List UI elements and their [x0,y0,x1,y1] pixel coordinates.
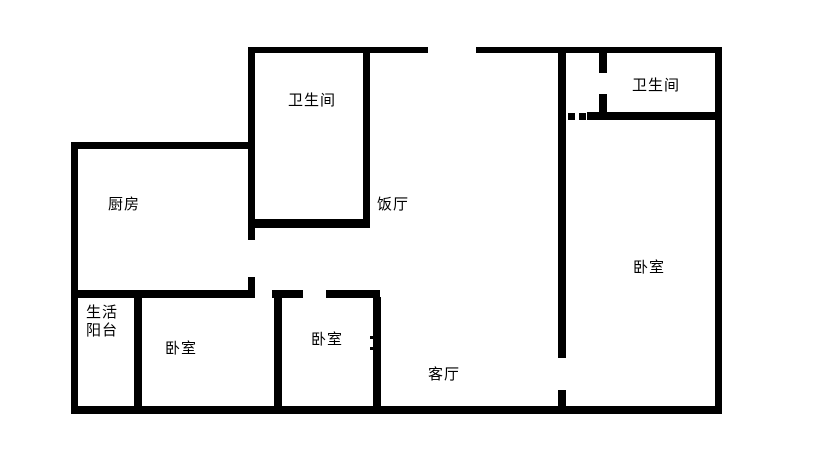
door-tick-lower [370,347,373,350]
utility-balcony-line2: 阳台 [86,321,118,339]
living-room-label: 客厅 [428,366,460,382]
dining-label: 饭厅 [377,196,409,212]
wall-right-exterior [715,47,722,414]
utility-balcony-line1: 生活 [86,303,118,321]
bedroom-right-label: 卧室 [633,259,665,275]
wall-mid-horizontal-c [326,290,380,298]
door-dash-2 [579,113,586,120]
bathroom-top-label: 卫生间 [288,92,336,108]
wall-kitchen-top [71,142,248,149]
wall-left-exterior [71,142,78,414]
wall-right-section-vertical [558,53,566,358]
wall-bathroom-right-inner-top [599,53,607,73]
wall-balcony-divider [134,295,142,408]
wall-mid-horizontal-a [78,290,254,298]
wall-bathroom-top-left [248,47,255,240]
kitchen-label: 厨房 [108,196,140,212]
wall-top-left-segment [248,47,428,53]
bedroom-middle-label: 卧室 [311,331,343,347]
utility-balcony-label: 生活 阳台 [86,303,118,339]
door-dash-1 [568,113,575,120]
wall-bathroom-top-right [363,53,370,228]
wall-bedroom-middle-right [373,297,381,408]
wall-bathroom-right-inner-bottom [599,94,607,112]
door-tick-upper [370,336,373,339]
wall-bedroom-divider [274,297,282,408]
wall-bottom-exterior [71,406,722,414]
floor-plan: 厨房 卫生间 饭厅 卫生间 卧室 卧室 卧室 客厅 生活 阳台 [0,0,816,460]
bathroom-right-label: 卫生间 [632,77,680,93]
bedroom-left-label: 卧室 [165,340,197,356]
wall-right-section-stub [558,390,566,408]
wall-bathroom-top-bottom [251,219,370,228]
wall-bathroom-right-bottom [587,112,722,120]
